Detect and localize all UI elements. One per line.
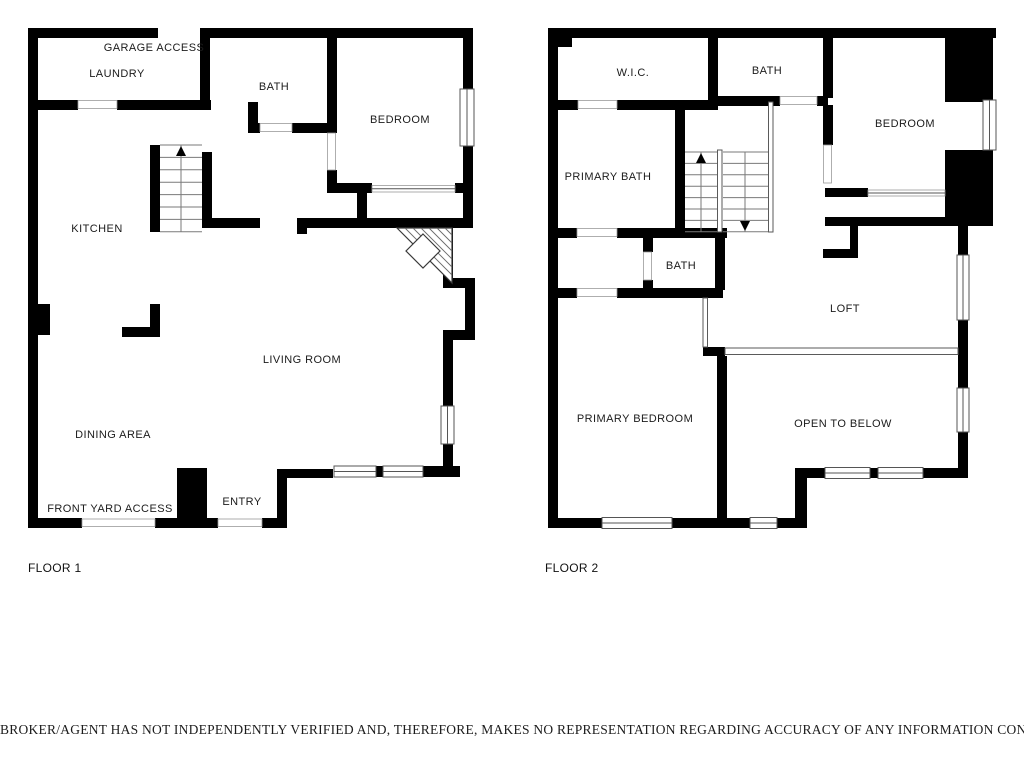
stairs-up-arrow-icon [176,146,186,200]
floor2-stairs [685,102,773,232]
room-label-wic: W.I.C. [617,67,650,79]
room-label-bedroom-f1: BEDROOM [370,114,430,126]
room-label-bath-f2-top: BATH [752,65,782,77]
stairs-side-rail [769,102,774,232]
room-label-front-yard-access: FRONT YARD ACCESS [47,503,173,515]
room-label-living-room: LIVING ROOM [263,354,341,366]
room-label-bath-f1: BATH [259,81,289,93]
disclaimer-text: BROKER/AGENT HAS NOT INDEPENDENTLY VERIF… [0,722,1024,738]
floor1-title: FLOOR 1 [28,561,81,575]
room-label-garage-access: GARAGE ACCESS [104,42,205,54]
floor1-stairs [160,145,202,232]
room-label-open-to-below: OPEN TO BELOW [794,418,892,430]
room-label-loft: LOFT [830,303,860,315]
room-label-dining-area: DINING AREA [75,429,151,441]
room-label-kitchen: KITCHEN [71,223,122,235]
floor2-windows [602,100,996,529]
floorplan-drawing [0,0,1024,710]
floor1-plan [28,28,475,528]
room-label-primary-bath: PRIMARY BATH [565,171,652,183]
stairs-center-rail [718,150,723,232]
floorplan-canvas: GARAGE ACCESS LAUNDRY BATH BEDROOM KITCH… [0,0,1024,768]
fireplace-icon [397,228,452,283]
room-label-entry: ENTRY [222,496,261,508]
floor2-title: FLOOR 2 [545,561,598,575]
room-label-bath-f2-mid: BATH [666,260,696,272]
floor2-plan [548,28,996,529]
room-label-primary-bedroom: PRIMARY BEDROOM [577,413,693,425]
floor1-door-sills [78,101,455,527]
room-label-laundry: LAUNDRY [89,68,145,80]
room-label-bedroom-f2: BEDROOM [875,118,935,130]
